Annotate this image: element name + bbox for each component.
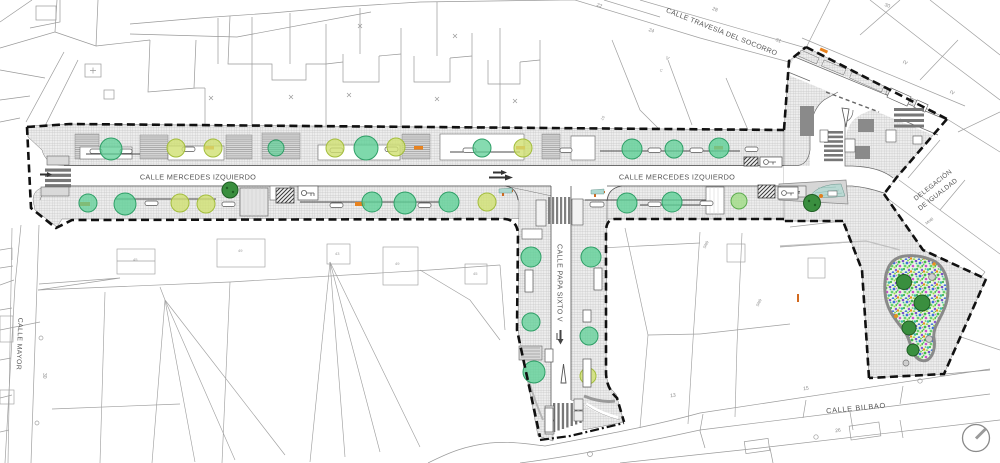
svg-text:43: 43 xyxy=(335,251,340,256)
svg-text:15: 15 xyxy=(803,386,809,393)
svg-text:49: 49 xyxy=(395,261,400,266)
svg-text:45: 45 xyxy=(473,271,478,276)
svg-text:30: 30 xyxy=(41,373,47,379)
svg-text:26: 26 xyxy=(835,428,841,435)
svg-text:13: 13 xyxy=(670,393,676,400)
svg-text:45: 45 xyxy=(133,257,138,262)
svg-text:CALLE PAPA SIXTO V: CALLE PAPA SIXTO V xyxy=(556,244,563,322)
svg-text:49: 49 xyxy=(238,248,243,253)
svg-text:CALLE MERCEDES IZQUIERDO: CALLE MERCEDES IZQUIERDO xyxy=(140,173,256,182)
svg-text:CALLE MERCEDES IZQUIERDO: CALLE MERCEDES IZQUIERDO xyxy=(619,173,735,182)
